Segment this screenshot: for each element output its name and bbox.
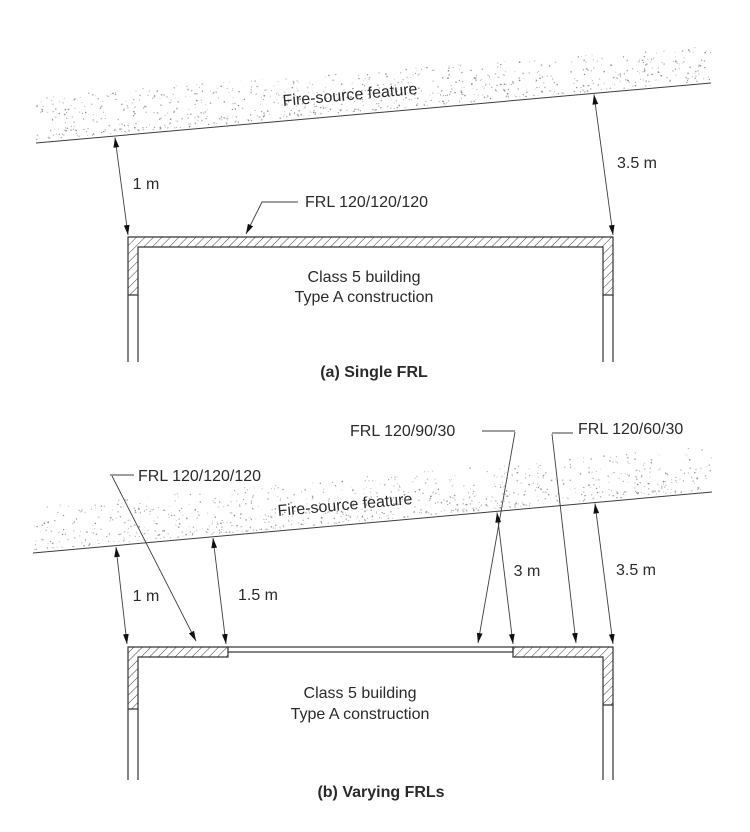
dimension-arrow-1m-a	[115, 138, 128, 236]
frl-120-60-30-leader-arrow	[552, 434, 576, 643]
building-wall-section-frl-120-90-30	[228, 647, 513, 652]
dimension-label-1m-b: 1 m	[133, 588, 160, 605]
dimension-label-3-5m-b: 3.5 m	[616, 562, 656, 579]
building-type-label-b: Type A construction	[291, 706, 430, 723]
dimension-arrow-3m-b	[497, 513, 513, 645]
building-type-label-a: Type A construction	[295, 289, 434, 306]
building-class-label-b: Class 5 building	[304, 685, 417, 702]
diagram-a: Fire-source feature 1 m 3.5 m FRL 120/12…	[36, 40, 712, 381]
dimension-label-1m-a: 1 m	[133, 176, 160, 193]
caption-b: (b) Varying FRLs	[317, 784, 444, 801]
dimension-arrow-3-5m-b	[595, 504, 613, 645]
frl-diagram-svg: Fire-source feature 1 m 3.5 m FRL 120/12…	[0, 0, 750, 832]
frl-120-60-30-label: FRL 120/60/30	[578, 421, 683, 438]
figure-canvas: Fire-source feature 1 m 3.5 m FRL 120/12…	[0, 0, 750, 832]
caption-a: (a) Single FRL	[320, 364, 428, 381]
dimension-label-3m-b: 3 m	[514, 563, 541, 580]
building-fire-rated-walls-a	[128, 237, 613, 295]
building-wall-section-frl-120-60-30	[513, 647, 613, 705]
frl-120-90-30-label: FRL 120/90/30	[350, 423, 455, 440]
fire-source-feature-label-a: Fire-source feature	[282, 81, 418, 110]
frl-leader-arrow-a	[246, 202, 298, 234]
building-wall-section-frl-120-120-120	[128, 647, 228, 709]
dimension-label-3-5m-a: 3.5 m	[617, 155, 657, 172]
dimension-arrow-3-5m-a	[594, 95, 613, 236]
dimension-arrow-1m-b	[116, 547, 127, 644]
frl-120-120-120-label: FRL 120/120/120	[138, 468, 261, 485]
fire-source-feature-label-b: Fire-source feature	[277, 491, 413, 520]
dimension-label-1-5m-b: 1.5 m	[238, 587, 278, 604]
diagram-b: Fire-source feature FRL 120/120/120 FRL …	[33, 421, 712, 801]
building-class-label-a: Class 5 building	[308, 269, 421, 286]
dimension-arrow-1-5m-b	[213, 538, 226, 644]
frl-label-a: FRL 120/120/120	[305, 194, 428, 211]
frl-120-120-120-leader-arrow	[112, 476, 196, 641]
